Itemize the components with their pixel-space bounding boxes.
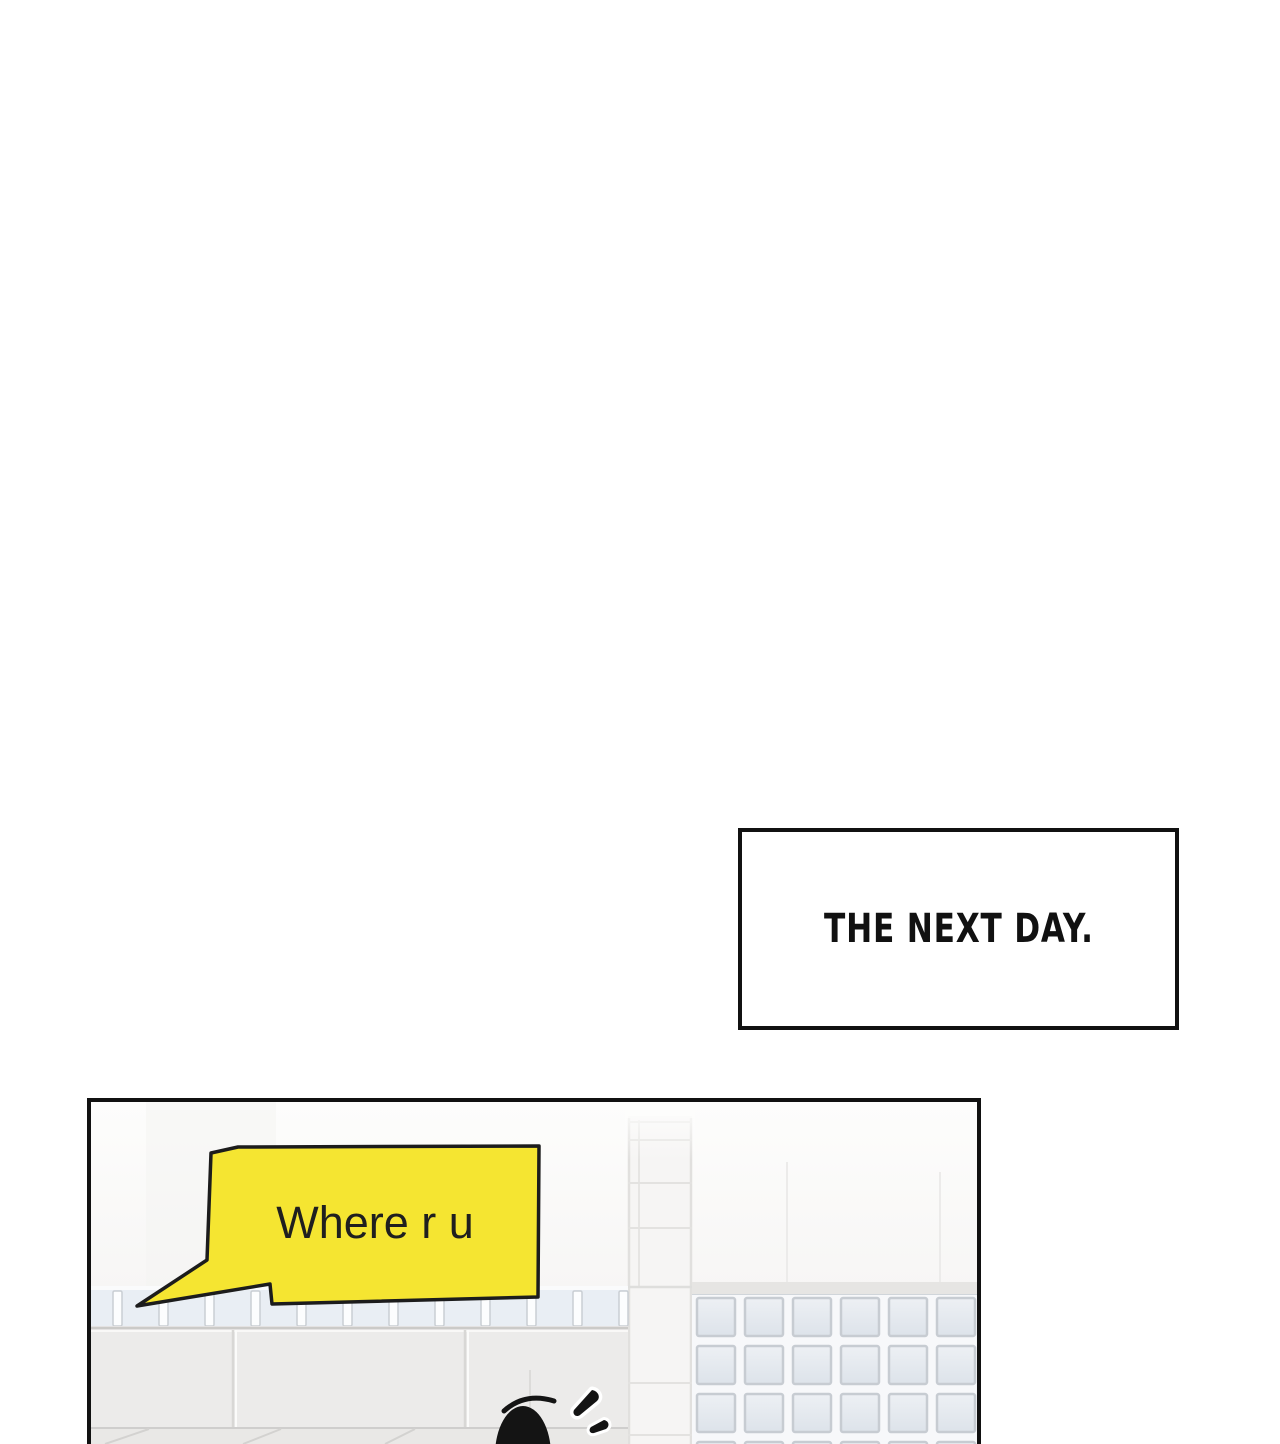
window-pane: [841, 1298, 879, 1336]
webtoon-page: THE NEXT DAY.: [0, 0, 1280, 1444]
window-pane: [697, 1346, 735, 1384]
window-pane: [793, 1394, 831, 1432]
window-pane: [745, 1298, 783, 1336]
railing-post: [619, 1291, 628, 1326]
tiled-wall: [91, 1326, 628, 1444]
railing-post: [573, 1291, 582, 1326]
pillar-face: [628, 1116, 692, 1444]
speech-bubble-text: Where r u: [276, 1197, 474, 1248]
ladder-pillar: [625, 1102, 695, 1444]
window-pane: [793, 1298, 831, 1336]
scene-caption-box: THE NEXT DAY.: [738, 828, 1179, 1030]
window-pane: [745, 1394, 783, 1432]
grid-ledge: [692, 1282, 977, 1295]
ladder-top-fade: [625, 1102, 695, 1160]
window-pane: [889, 1298, 927, 1336]
window-pane: [745, 1346, 783, 1384]
window-pane: [889, 1346, 927, 1384]
scene-caption-text: THE NEXT DAY.: [824, 906, 1094, 952]
comic-panel: Where r u: [87, 1098, 981, 1444]
window-pane: [841, 1394, 879, 1432]
window-grid: [692, 1282, 977, 1444]
wall-face: [91, 1326, 628, 1444]
railing-post: [113, 1291, 122, 1326]
window-pane: [937, 1298, 975, 1336]
window-pane: [697, 1394, 735, 1432]
window-pane: [937, 1346, 975, 1384]
window-pane: [697, 1298, 735, 1336]
window-pane: [841, 1346, 879, 1384]
railing-post: [251, 1291, 260, 1326]
window-pane: [889, 1394, 927, 1432]
panel-artwork: Where r u: [91, 1102, 977, 1444]
window-pane: [937, 1394, 975, 1432]
window-pane: [793, 1346, 831, 1384]
